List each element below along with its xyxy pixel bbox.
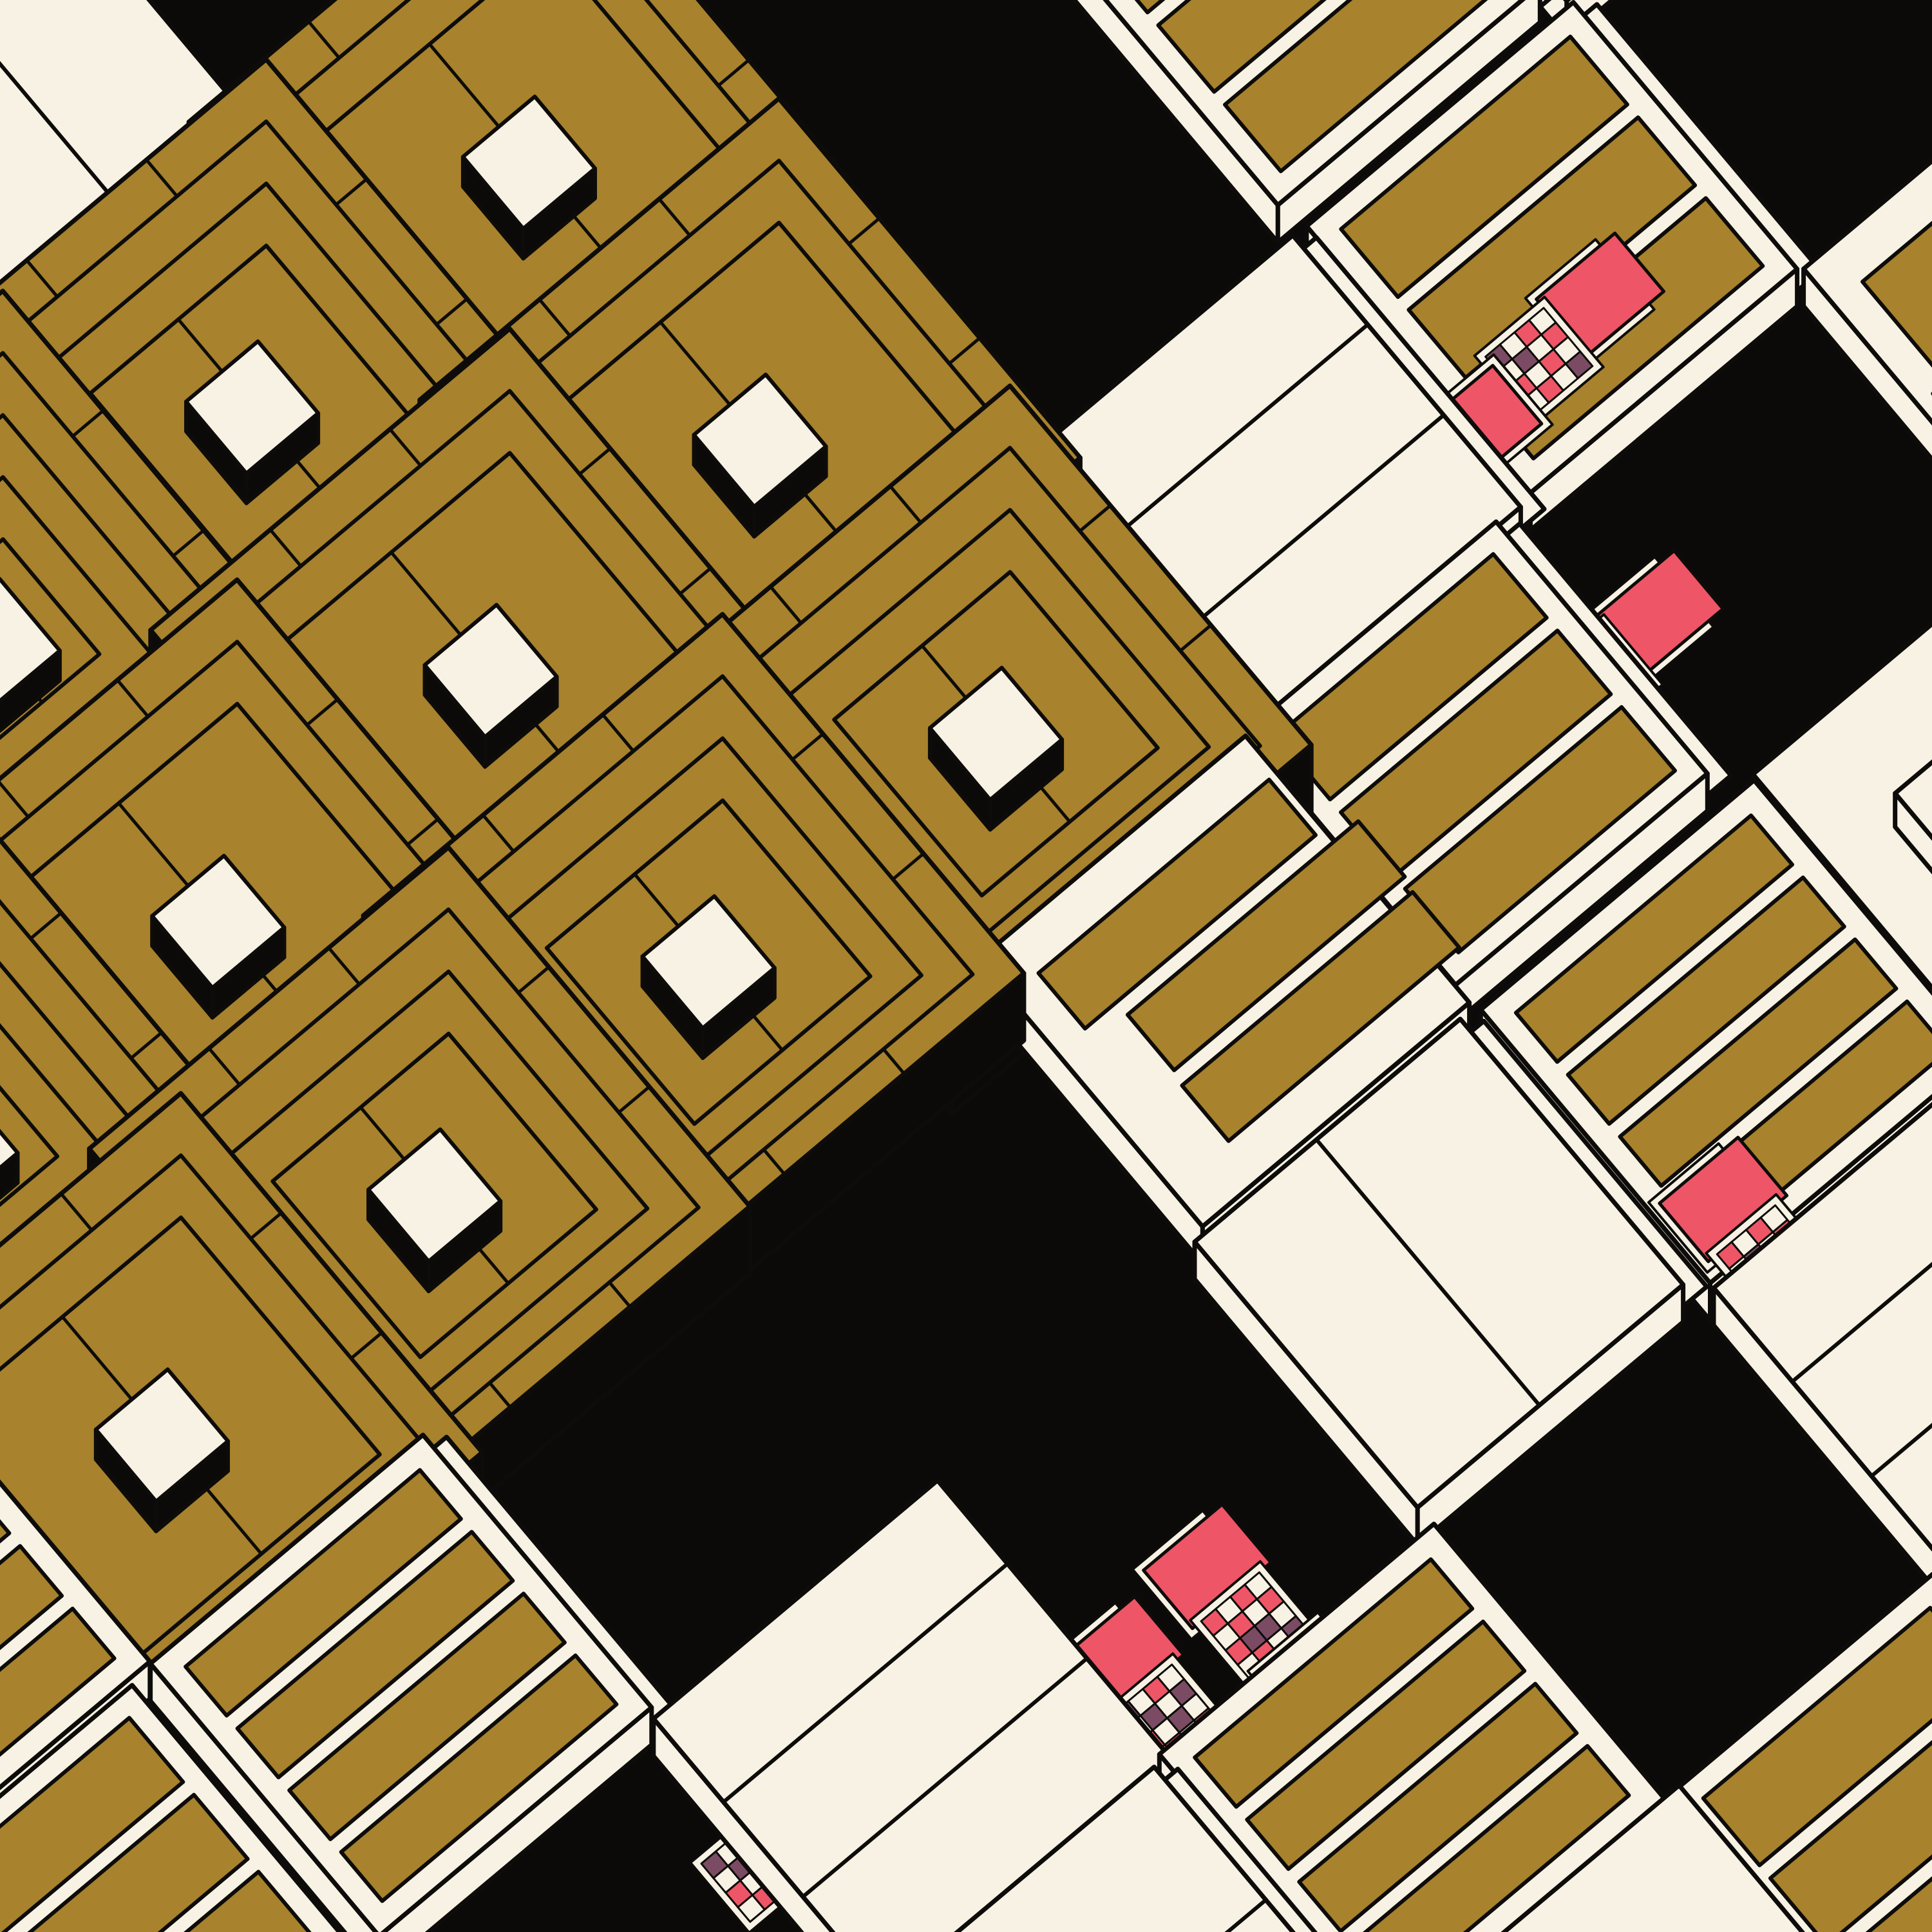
artwork-canvas xyxy=(0,0,1932,1932)
generative-artwork xyxy=(0,0,1932,1932)
